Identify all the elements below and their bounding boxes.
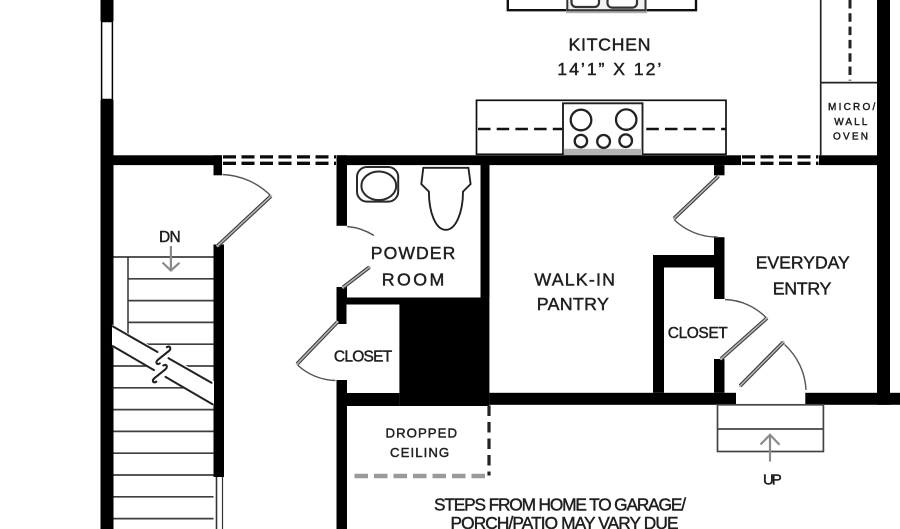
- svg-text:WALL: WALL: [834, 117, 868, 128]
- svg-text:EVERYDAY: EVERYDAY: [756, 253, 850, 273]
- svg-text:ROOM: ROOM: [382, 269, 445, 289]
- svg-text:CEILING: CEILING: [390, 445, 449, 460]
- svg-text:POWDER: POWDER: [371, 243, 456, 263]
- svg-text:STEPS FROM HOME TO GARAGE/: STEPS FROM HOME TO GARAGE/: [434, 495, 686, 515]
- svg-text:CLOSET: CLOSET: [334, 349, 393, 366]
- svg-text:KITCHEN: KITCHEN: [569, 35, 651, 55]
- svg-text:14’1” X 12’: 14’1” X 12’: [557, 59, 661, 79]
- svg-text:PORCH/PATIO MAY VARY DUE: PORCH/PATIO MAY VARY DUE: [451, 513, 679, 529]
- svg-text:UP: UP: [763, 472, 782, 489]
- svg-text:CLOSET: CLOSET: [668, 325, 728, 342]
- svg-text:PANTRY: PANTRY: [537, 294, 609, 314]
- svg-text:DROPPED: DROPPED: [386, 426, 458, 441]
- svg-text:ENTRY: ENTRY: [773, 279, 832, 299]
- svg-text:DN: DN: [159, 229, 181, 246]
